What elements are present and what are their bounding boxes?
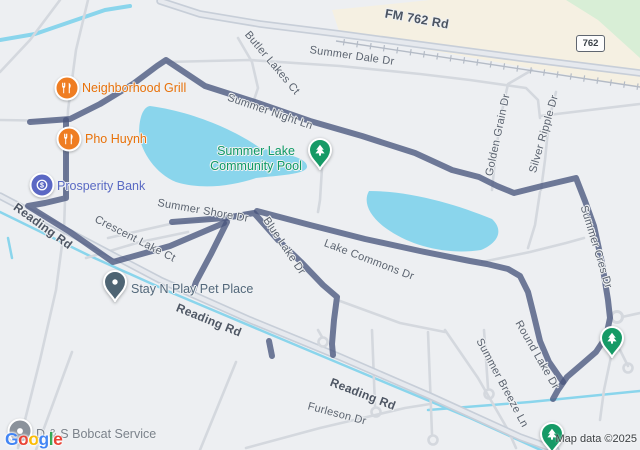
railroad-tick bbox=[410, 49, 411, 55]
dot-icon[interactable] bbox=[102, 270, 128, 307]
canal-water bbox=[8, 238, 12, 258]
railroad-tick bbox=[504, 63, 505, 69]
route-polyline bbox=[269, 341, 272, 356]
railroad-tick bbox=[477, 59, 478, 65]
google-logo-letter: o bbox=[18, 429, 28, 449]
railroad-tick bbox=[397, 47, 398, 53]
road-line bbox=[340, 301, 445, 332]
railroad-tick bbox=[437, 53, 438, 59]
restaurant-icon[interactable] bbox=[55, 76, 80, 101]
cul-de-sac bbox=[429, 436, 438, 445]
map-attribution: Map data ©2025 bbox=[556, 433, 638, 445]
svg-text:$: $ bbox=[40, 183, 44, 190]
railroad-tick bbox=[424, 51, 425, 57]
map-graphics bbox=[0, 0, 640, 450]
poi-label-summer-lake-community-pool[interactable]: Summer LakeCommunity Pool bbox=[210, 144, 302, 174]
road-line bbox=[484, 330, 488, 388]
highway-shield-label: 762 bbox=[583, 38, 599, 49]
map-canvas[interactable]: FM 762 RdSummer Dale DrButler Lakes CtSu… bbox=[0, 0, 640, 450]
google-logo-letter: e bbox=[53, 429, 62, 449]
road-line bbox=[528, 192, 540, 248]
poi-label-prosperity-bank[interactable]: Prosperity Bank bbox=[57, 179, 145, 193]
railroad-tick bbox=[490, 61, 491, 67]
highway-shield-762: 762 bbox=[576, 35, 605, 52]
canal-water bbox=[0, 6, 130, 40]
tree-icon bbox=[599, 326, 625, 358]
poi-label-neighborhood-grill[interactable]: Neighborhood Grill bbox=[82, 81, 186, 95]
tree-icon[interactable] bbox=[307, 138, 333, 175]
road-line bbox=[318, 330, 322, 337]
railroad-tick bbox=[343, 39, 344, 45]
google-logo-letter: o bbox=[28, 429, 38, 449]
road-line bbox=[428, 332, 432, 434]
tree-icon bbox=[307, 138, 333, 170]
google-logo-letter: g bbox=[39, 429, 49, 449]
railroad-tick bbox=[450, 55, 451, 61]
railroad-tick bbox=[464, 57, 465, 63]
railroad-tick bbox=[370, 43, 371, 49]
restaurant-icon[interactable] bbox=[57, 127, 82, 152]
poi-label-stay-n-play-pet-place[interactable]: Stay N Play Pet Place bbox=[131, 282, 253, 296]
road-line bbox=[200, 362, 236, 450]
road-line bbox=[482, 238, 584, 262]
dollar-icon[interactable]: $ bbox=[30, 173, 55, 198]
google-logo-letter: G bbox=[5, 429, 18, 449]
road-line bbox=[541, 92, 556, 190]
google-logo[interactable]: Google bbox=[5, 429, 62, 450]
road-line bbox=[540, 104, 640, 116]
road-line bbox=[622, 313, 640, 317]
cul-de-sac bbox=[319, 338, 328, 347]
road-line bbox=[246, 404, 430, 448]
park-pin[interactable] bbox=[599, 326, 625, 363]
railroad-tick bbox=[517, 65, 518, 71]
railroad-tick bbox=[357, 41, 358, 47]
poi-label-pho-huynh[interactable]: Pho Huynh bbox=[85, 132, 147, 146]
dot-icon bbox=[102, 270, 128, 302]
railroad-tick bbox=[383, 45, 384, 51]
